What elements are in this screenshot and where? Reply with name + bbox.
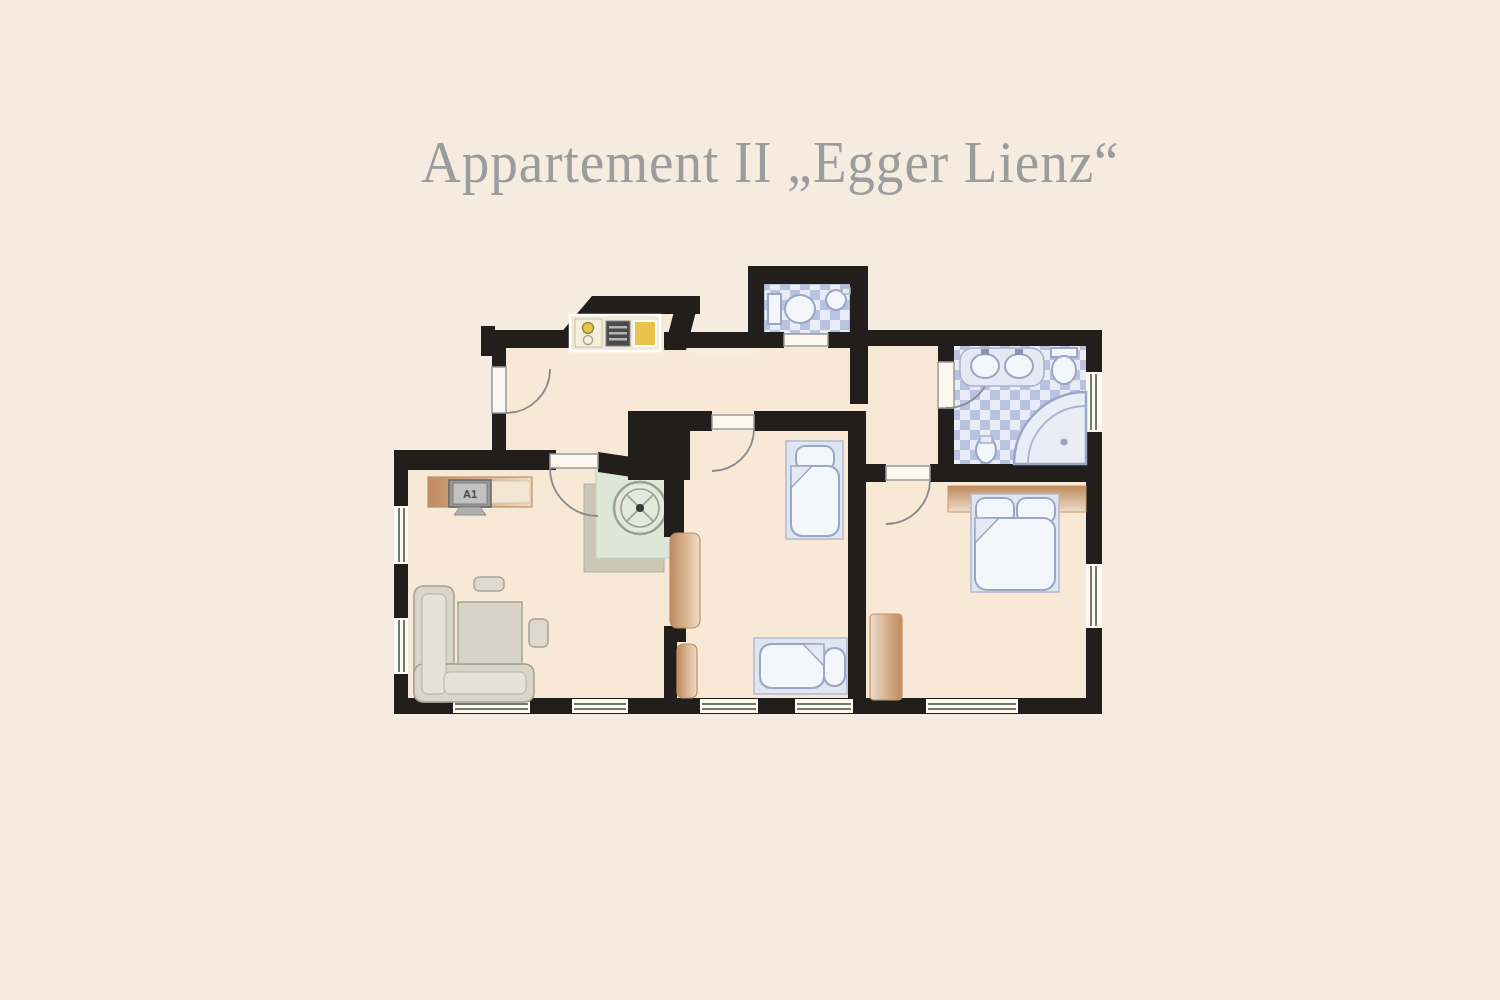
wc-door-icon [784, 334, 828, 346]
round-dining-table-icon [614, 482, 666, 534]
wall-outer-left [394, 450, 408, 714]
window-icon [1086, 564, 1102, 628]
page: Appartement II „Egger Lienz“ [0, 0, 1500, 1000]
wall [492, 330, 506, 369]
wall [848, 411, 866, 714]
wall [664, 431, 684, 537]
window-icon [572, 699, 628, 713]
wall [664, 640, 677, 714]
wall [938, 408, 954, 482]
window-icon [795, 699, 853, 713]
wall [938, 330, 1102, 346]
stool-icon [529, 619, 548, 647]
wall [938, 330, 954, 362]
wardrobe-icon [870, 614, 902, 700]
wall [930, 464, 1102, 482]
kitchen-appliance-icon [634, 321, 656, 346]
stool-icon [474, 577, 504, 591]
window-icon [926, 699, 1018, 713]
toilet-icon [768, 294, 815, 324]
single-bed-icon [754, 638, 847, 694]
wall [748, 332, 784, 348]
window-icon [394, 618, 408, 674]
wall-living-top [394, 450, 556, 470]
double-washbasin-icon [960, 348, 1044, 386]
wall [848, 464, 886, 482]
double-bed-icon [971, 494, 1059, 592]
coffee-table-icon [458, 602, 522, 664]
bathroom-toilet-icon [1051, 348, 1077, 384]
wardrobe-panel-icon [670, 533, 700, 628]
window-icon [394, 506, 408, 564]
dining-area [584, 470, 676, 572]
sink-icon [575, 319, 602, 347]
kitchen [570, 315, 660, 351]
wardrobe-panel-icon [677, 644, 697, 698]
stove-icon [606, 321, 630, 346]
single-bed-icon [786, 441, 843, 539]
wall [828, 332, 868, 348]
floor-plan: A1 [0, 0, 1500, 1000]
wall [646, 411, 712, 431]
wall [664, 332, 760, 348]
bidet-icon [976, 436, 996, 463]
window-icon [700, 699, 758, 713]
svg-text:A1: A1 [463, 488, 477, 500]
window-icon [1086, 372, 1102, 432]
